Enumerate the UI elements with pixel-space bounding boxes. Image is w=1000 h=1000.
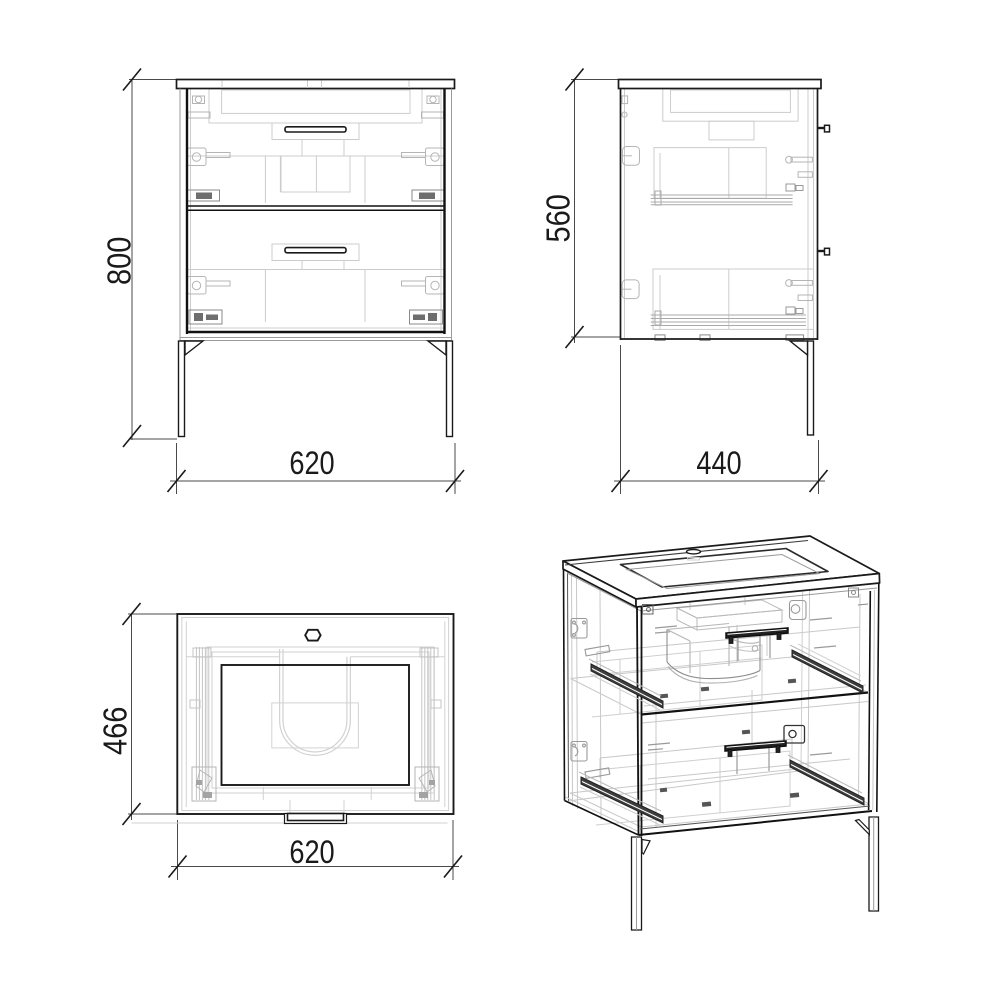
svg-text:440: 440 (696, 446, 741, 482)
svg-text:800: 800 (101, 237, 138, 285)
svg-text:560: 560 (540, 194, 577, 242)
svg-text:620: 620 (289, 446, 334, 482)
svg-text:620: 620 (289, 835, 334, 871)
svg-text:466: 466 (97, 707, 134, 755)
